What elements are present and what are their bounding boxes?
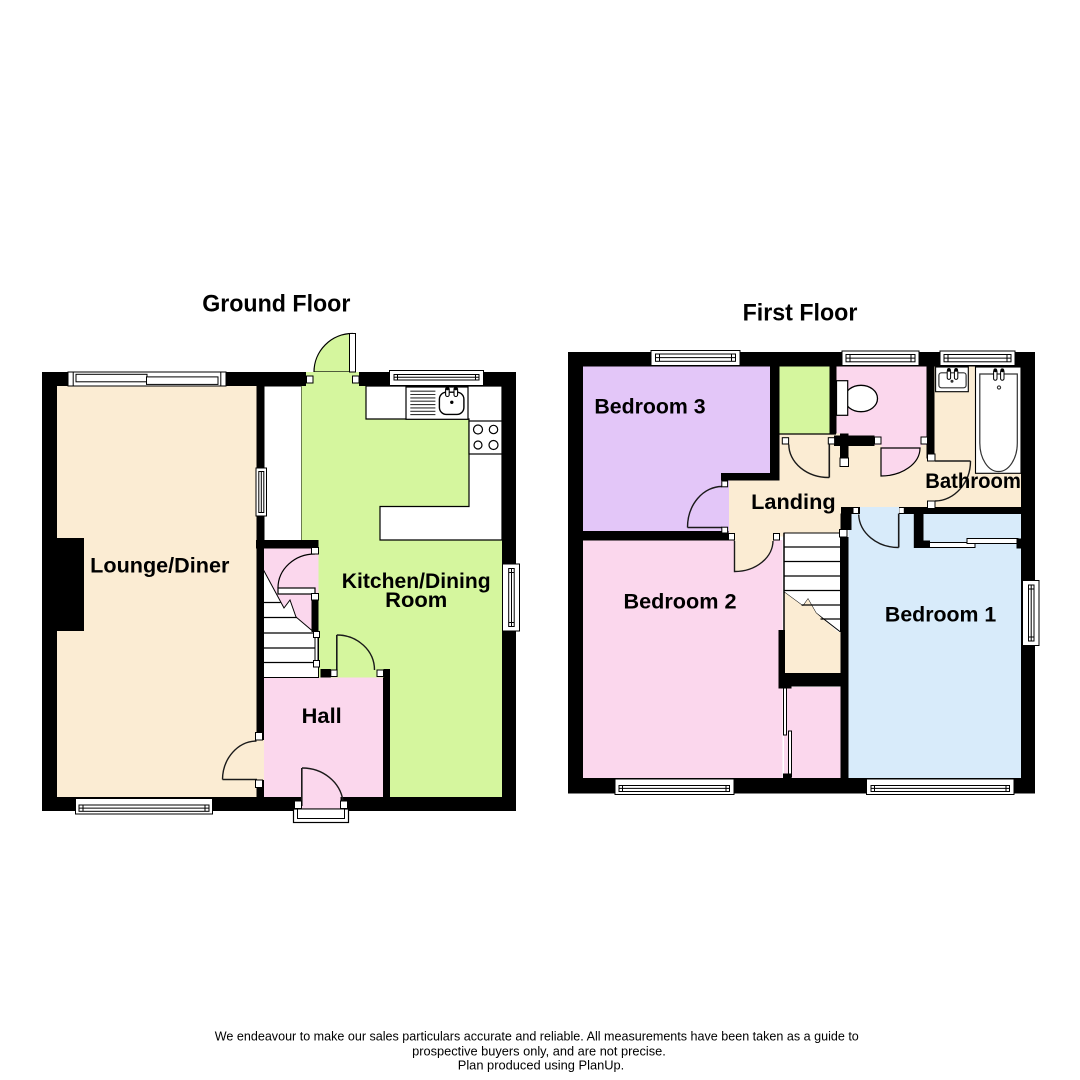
svg-text:First Floor: First Floor xyxy=(743,300,858,327)
svg-text:Bedroom 1: Bedroom 1 xyxy=(885,603,997,626)
svg-text:Room: Room xyxy=(385,589,447,612)
svg-text:Ground Floor: Ground Floor xyxy=(202,291,350,318)
svg-text:We endeavour to make our sales: We endeavour to make our sales particula… xyxy=(215,1028,859,1043)
svg-text:Bedroom 3: Bedroom 3 xyxy=(594,395,705,418)
svg-text:Hall: Hall xyxy=(302,705,342,728)
svg-text:Bathroom: Bathroom xyxy=(925,470,1021,493)
svg-text:Bedroom 2: Bedroom 2 xyxy=(624,591,737,614)
svg-text:Plan produced using PlanUp.: Plan produced using PlanUp. xyxy=(458,1057,625,1072)
svg-text:Lounge/Diner: Lounge/Diner xyxy=(90,554,229,577)
svg-text:Landing: Landing xyxy=(751,491,836,514)
svg-text:prospective buyers only, and a: prospective buyers only, and are not pre… xyxy=(412,1044,666,1059)
